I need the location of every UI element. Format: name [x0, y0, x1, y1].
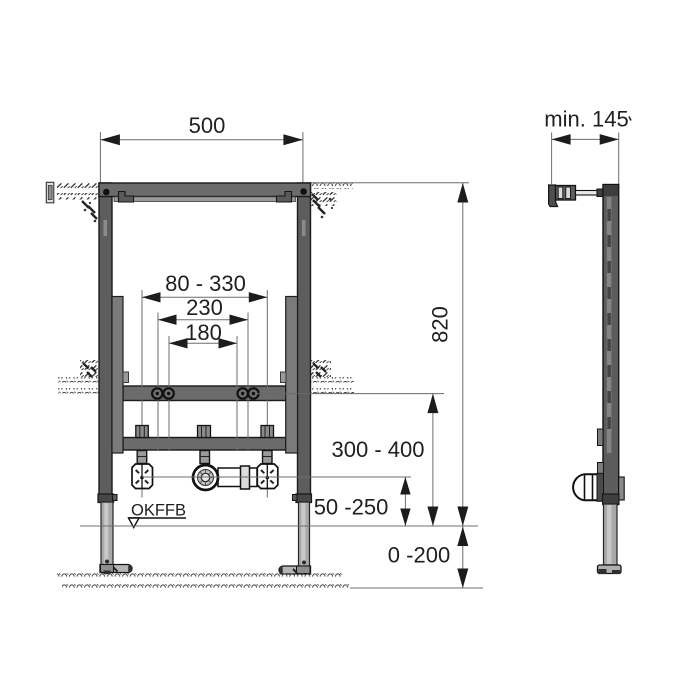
svg-text:230: 230 — [186, 295, 223, 320]
svg-text:OKFFB: OKFFB — [131, 502, 186, 520]
svg-text:0 -200: 0 -200 — [388, 543, 450, 568]
svg-text:180: 180 — [185, 320, 222, 345]
svg-text:80 - 330: 80 - 330 — [165, 271, 246, 296]
svg-text:820: 820 — [428, 306, 453, 343]
svg-text:500: 500 — [189, 113, 226, 138]
svg-text:300 - 400: 300 - 400 — [332, 437, 425, 462]
svg-text:min. 145: min. 145 — [544, 106, 628, 131]
svg-text:50 -250: 50 -250 — [314, 495, 389, 520]
